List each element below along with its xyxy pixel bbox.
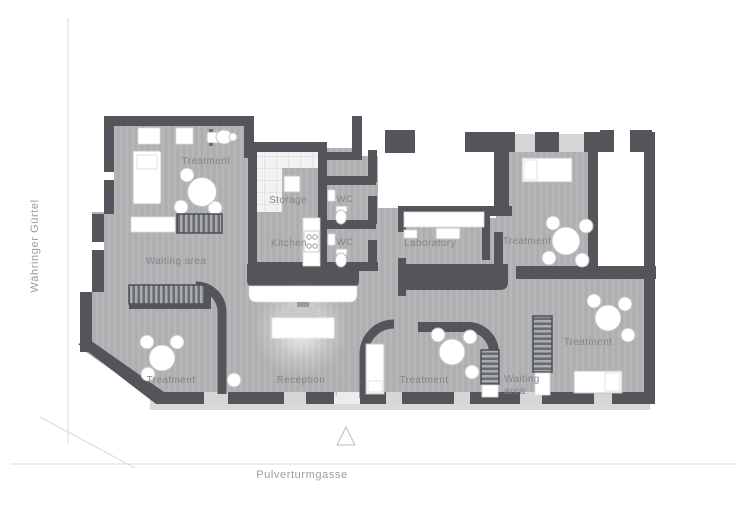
- room-label-waiting-right-line1: Waiting: [504, 374, 540, 385]
- bench-icon: [533, 316, 552, 372]
- room-label-reception: Reception: [277, 375, 326, 386]
- floor-plan-drawing: Währinger Gürtel Pulverturmgasse: [0, 0, 744, 527]
- room-label-treatment-br: Treatment: [564, 337, 613, 348]
- pillow-icon: [137, 155, 157, 169]
- stool-icon: [227, 373, 241, 387]
- toilet-icon: [336, 249, 348, 267]
- room-label-laboratory: Laboratory: [404, 238, 456, 249]
- pillow-icon: [605, 373, 620, 391]
- lab-counter-icon: [404, 230, 417, 238]
- pendant-lamp-icon: [297, 302, 309, 307]
- bench-icon: [481, 350, 499, 384]
- street-label-left: Währinger Gürtel: [29, 199, 41, 292]
- adjacent-room: [598, 152, 644, 268]
- shelf-icon: [131, 217, 175, 232]
- room-label-wc-top: WC: [337, 194, 354, 205]
- void-courtyard: [378, 116, 498, 208]
- round-table-icon: [595, 305, 621, 331]
- pillow-icon: [524, 160, 537, 180]
- sink-icon: [328, 234, 335, 245]
- round-table-icon: [552, 227, 580, 255]
- cabinet-icon: [176, 128, 193, 144]
- toilet-icon: [336, 206, 348, 224]
- room-label-treatment-tl: Treatment: [182, 156, 231, 167]
- room-label-storage: Storage: [269, 195, 307, 206]
- pillow-icon: [368, 381, 382, 392]
- room-label-treatment-bm: Treatment: [400, 375, 449, 386]
- sink-icon: [328, 190, 335, 201]
- room-label-treatment-tr: Treatment: [503, 236, 552, 247]
- room-label-waiting-right-line2: area: [504, 386, 526, 397]
- storage-cabinet-icon: [284, 176, 300, 192]
- round-table-icon: [188, 178, 217, 207]
- seat-icon: [482, 385, 498, 397]
- room-label-waiting-left: Waiting area: [146, 256, 207, 267]
- room-label-wc-bottom: WC: [337, 237, 354, 248]
- bench-icon: [177, 214, 222, 233]
- entrance-triangle-icon: [337, 427, 355, 445]
- street-label-bottom: Pulverturmgasse: [256, 469, 348, 481]
- round-table-icon: [439, 339, 465, 365]
- floor-plan-page: Währinger Gürtel Pulverturmgasse: [0, 0, 744, 527]
- entrance-threshold: [334, 392, 360, 404]
- cabinet-icon: [138, 128, 160, 144]
- lab-counter-icon: [404, 212, 484, 227]
- bench-icon: [129, 285, 205, 304]
- room-label-kitchen: Kitchen: [271, 238, 307, 249]
- waiting-bench-counter: [398, 264, 508, 290]
- street-line-corner: [40, 417, 135, 468]
- room-label-treatment-bl: Treatment: [147, 375, 196, 386]
- round-table-icon: [149, 345, 175, 371]
- reception-desk: [272, 318, 334, 338]
